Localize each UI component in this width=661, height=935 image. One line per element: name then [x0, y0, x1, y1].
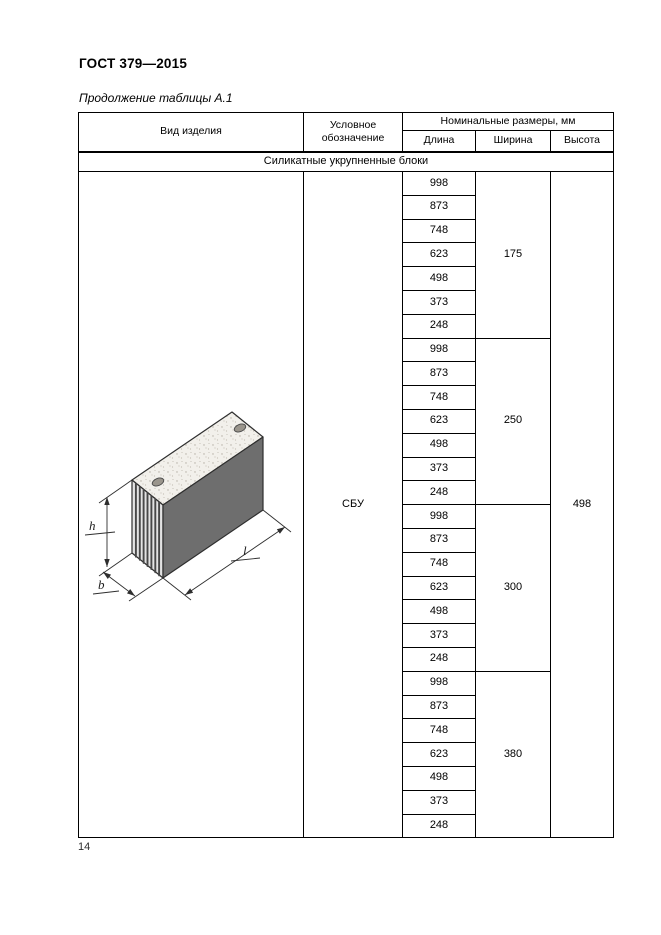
- dimensions-table: Вид изделия Условное обозначение Номинал…: [78, 112, 614, 838]
- length-cell: 998: [403, 505, 476, 529]
- col-header-product-type: Вид изделия: [79, 113, 304, 152]
- length-cell: 873: [403, 528, 476, 552]
- length-cell: 748: [403, 719, 476, 743]
- product-drawing: h b l: [85, 397, 297, 612]
- col-header-designation: Условное обозначение: [304, 113, 403, 152]
- designation-cell: СБУ: [304, 172, 403, 838]
- header-row-top: Вид изделия Условное обозначение Номинал…: [79, 113, 614, 131]
- length-cell: 873: [403, 195, 476, 219]
- length-cell: 748: [403, 219, 476, 243]
- dim-label-l: l: [243, 543, 247, 558]
- col-header-height: Высота: [551, 131, 614, 152]
- length-cell: 373: [403, 790, 476, 814]
- length-cell: 498: [403, 600, 476, 624]
- section-title: Силикатные укрупненные блоки: [79, 152, 614, 172]
- table-row: h b l СБУ998175498: [79, 172, 614, 196]
- length-cell: 498: [403, 267, 476, 291]
- width-cell: 380: [476, 671, 551, 838]
- length-cell: 373: [403, 624, 476, 648]
- length-cell: 373: [403, 457, 476, 481]
- length-cell: 623: [403, 743, 476, 767]
- document-title: ГОСТ 379—2015: [79, 56, 187, 71]
- length-cell: 623: [403, 409, 476, 433]
- document-page: ГОСТ 379—2015 Продолжение таблицы А.1 Ви…: [0, 0, 661, 935]
- length-cell: 748: [403, 552, 476, 576]
- table-caption: Продолжение таблицы А.1: [79, 91, 233, 105]
- dim-label-b: b: [98, 577, 105, 592]
- length-cell: 248: [403, 814, 476, 838]
- col-header-dimensions: Номинальные размеры, мм: [403, 113, 614, 131]
- table-body: Силикатные укрупненные блоки: [79, 152, 614, 838]
- length-cell: 873: [403, 695, 476, 719]
- length-cell: 373: [403, 290, 476, 314]
- dim-label-h: h: [89, 518, 96, 533]
- page-number: 14: [78, 841, 90, 853]
- length-cell: 998: [403, 338, 476, 362]
- width-cell: 250: [476, 338, 551, 505]
- length-cell: 498: [403, 766, 476, 790]
- length-cell: 998: [403, 172, 476, 196]
- length-cell: 248: [403, 647, 476, 671]
- col-header-width: Ширина: [476, 131, 551, 152]
- table-header: Вид изделия Условное обозначение Номинал…: [79, 113, 614, 152]
- width-cell: 300: [476, 505, 551, 672]
- product-drawing-cell: h b l: [79, 172, 304, 838]
- length-cell: 623: [403, 576, 476, 600]
- length-cell: 873: [403, 362, 476, 386]
- length-cell: 623: [403, 243, 476, 267]
- length-cell: 998: [403, 671, 476, 695]
- length-cell: 748: [403, 386, 476, 410]
- col-header-length: Длина: [403, 131, 476, 152]
- length-cell: 498: [403, 433, 476, 457]
- length-cell: 248: [403, 481, 476, 505]
- width-cell: 175: [476, 172, 551, 339]
- height-cell: 498: [551, 172, 614, 838]
- length-cell: 248: [403, 314, 476, 338]
- section-row: Силикатные укрупненные блоки: [79, 152, 614, 172]
